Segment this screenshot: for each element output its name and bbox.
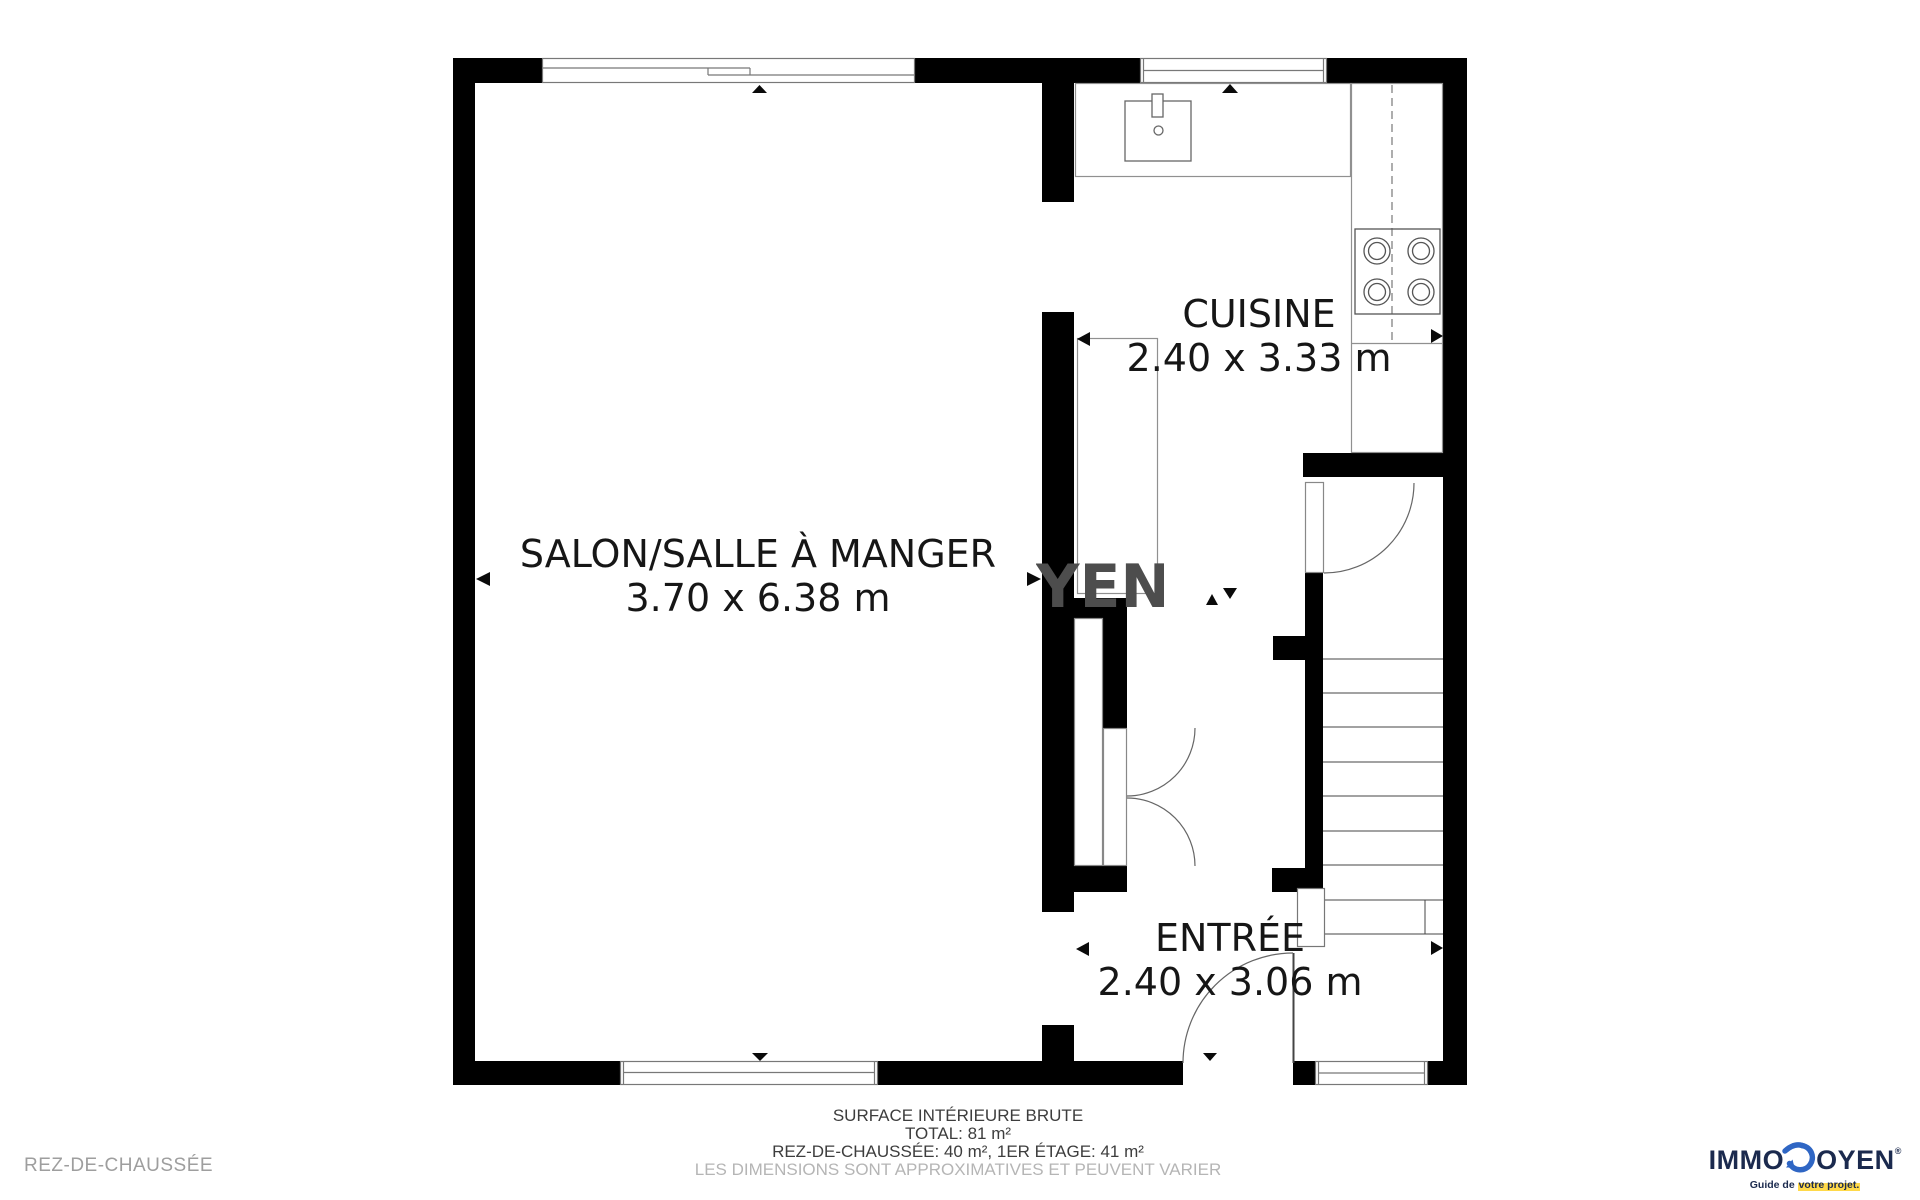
immodoyen-logo: IMMO OYEN ® Guide de votre projet. <box>1700 1142 1910 1191</box>
dimensions-disclaimer: LES DIMENSIONS SONT APPROXIMATIVES ET PE… <box>0 1160 1916 1180</box>
marker-center-down <box>1223 588 1237 599</box>
floorplan-page: YEN SALON/SALLE À MANGER 3.70 x 6.38 m C… <box>0 0 1920 1200</box>
closet-double-door <box>1104 728 1196 866</box>
logo-tagline: Guide de votre projet. <box>1700 1179 1910 1191</box>
room-name: SALON/SALLE À MANGER <box>520 532 996 576</box>
floor-label: REZ-DE-CHAUSSÉE <box>24 1155 213 1177</box>
sink-icon <box>1125 94 1191 161</box>
window-salon-bottom <box>621 1062 878 1085</box>
marker-center-up <box>1206 594 1218 605</box>
room-dimensions: 2.40 x 3.33 m <box>1127 336 1392 380</box>
room-dimensions: 3.70 x 6.38 m <box>520 576 996 620</box>
closet-niche <box>1075 619 1103 866</box>
logo-d-arrow-icon <box>1782 1140 1818 1176</box>
room-label-entree: ENTRÉE 2.40 x 3.06 m <box>1098 916 1363 1004</box>
surface-title: SURFACE INTÉRIEURE BRUTE <box>0 1106 1916 1126</box>
logo-text-oyen: OYEN <box>1816 1145 1895 1176</box>
surface-total: TOTAL: 81 m² <box>0 1124 1916 1144</box>
kitchen-counter-top <box>1076 84 1351 177</box>
logo-text-immo: IMMO <box>1709 1145 1785 1176</box>
room-label-cuisine: CUISINE 2.40 x 3.33 m <box>1127 292 1392 380</box>
marker-entree-right <box>1431 941 1443 955</box>
room-label-salon: SALON/SALLE À MANGER 3.70 x 6.38 m <box>520 532 996 620</box>
watermark-text: YEN <box>1036 556 1164 618</box>
marker-entry-door <box>1203 1053 1217 1061</box>
room-dimensions: 2.40 x 3.06 m <box>1098 960 1363 1004</box>
registered-mark: ® <box>1895 1146 1902 1156</box>
surface-breakdown: REZ-DE-CHAUSSÉE: 40 m², 1ER ÉTAGE: 41 m² <box>0 1142 1916 1162</box>
marker-bottom-window <box>752 1053 768 1061</box>
window-entree-bottom <box>1316 1062 1428 1085</box>
marker-salon-left <box>476 572 490 586</box>
window-salon-top <box>543 59 915 83</box>
room-name: ENTRÉE <box>1098 916 1363 960</box>
marker-top-window <box>752 85 767 93</box>
kitchen-counter-right <box>1352 84 1443 453</box>
hall-door <box>1306 483 1415 574</box>
window-cuisine-top <box>1141 59 1327 83</box>
marker-entree-left <box>1076 942 1089 956</box>
tagline-highlight: votre projet. <box>1798 1179 1861 1191</box>
tagline-prefix: Guide de <box>1750 1179 1798 1191</box>
room-name: CUISINE <box>1127 292 1392 336</box>
